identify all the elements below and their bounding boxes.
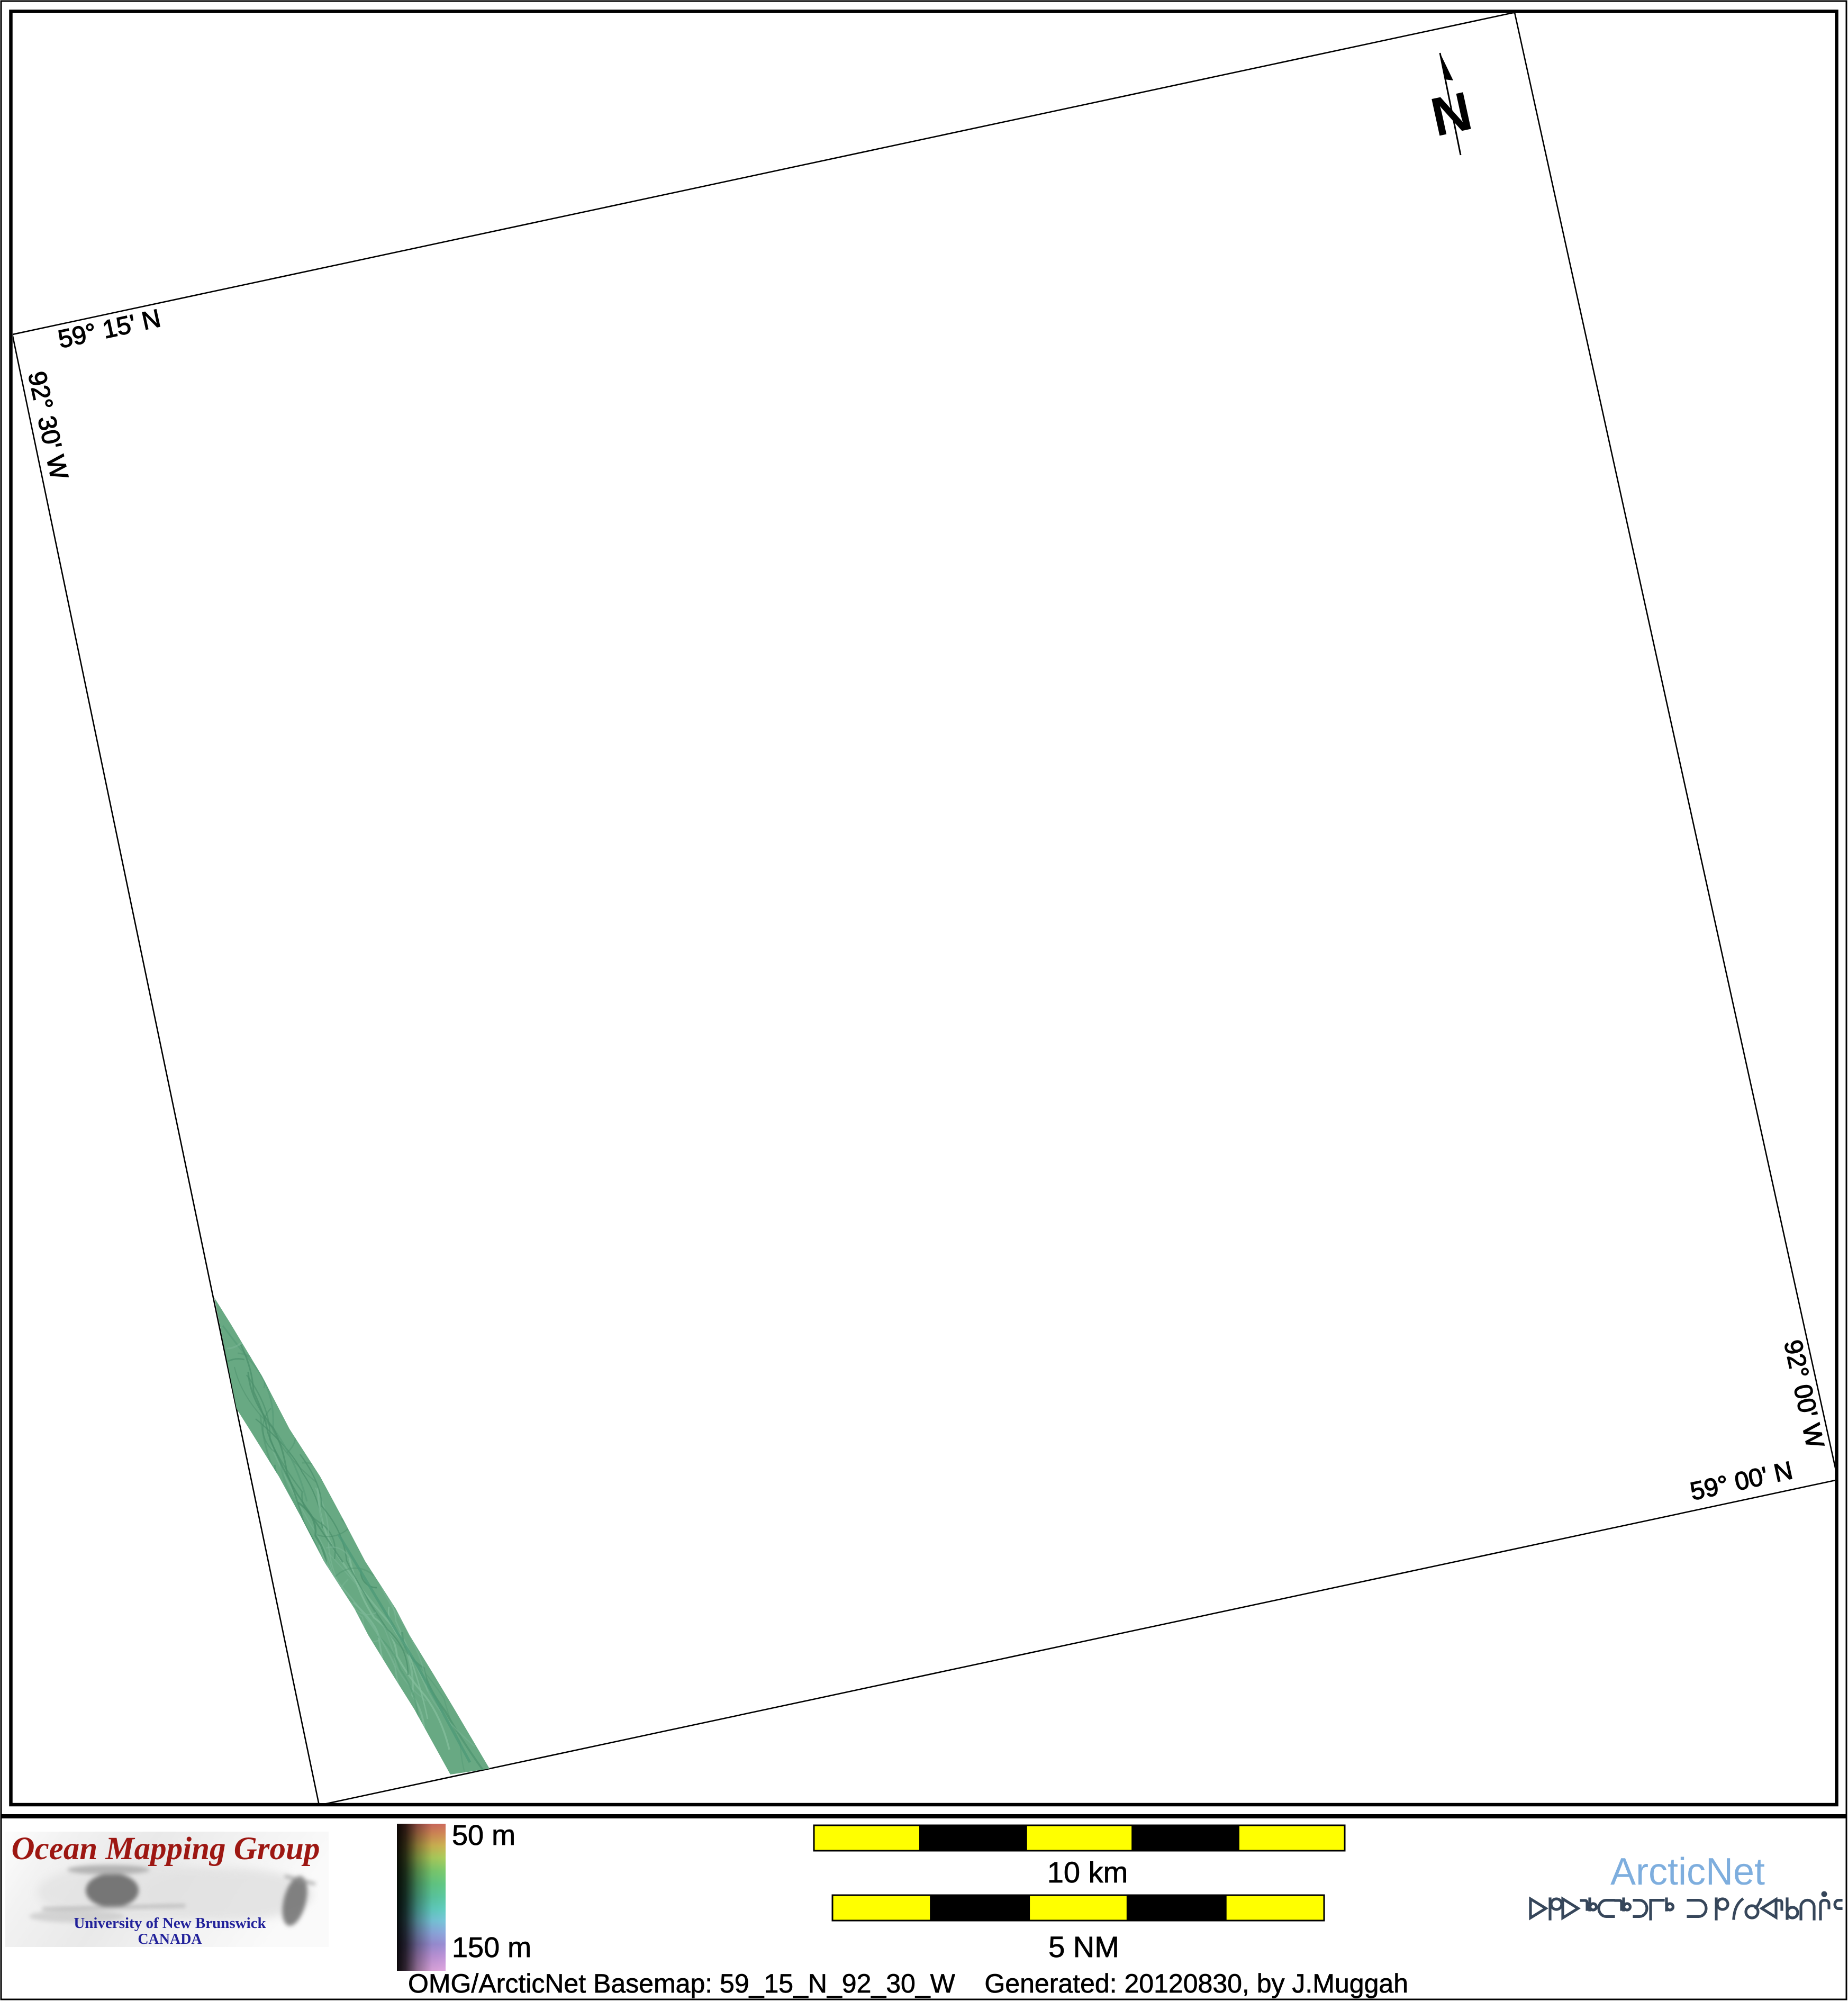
svg-text:50 m: 50 m (452, 1819, 515, 1851)
svg-text:CANADA: CANADA (138, 1931, 202, 1948)
svg-text:150 m: 150 m (452, 1932, 531, 1963)
svg-text:ArcticNet: ArcticNet (1610, 1851, 1765, 1893)
svg-text:Ocean Mapping Group: Ocean Mapping Group (12, 1831, 320, 1867)
svg-text:OMG/ArcticNet Basemap: 59_15_N: OMG/ArcticNet Basemap: 59_15_N_92_30_W G… (408, 1969, 1408, 1998)
svg-text:10 km: 10 km (1047, 1855, 1128, 1889)
svg-text:5 NM: 5 NM (1048, 1930, 1119, 1963)
svg-text:University of New Brunswick: University of New Brunswick (74, 1915, 266, 1932)
